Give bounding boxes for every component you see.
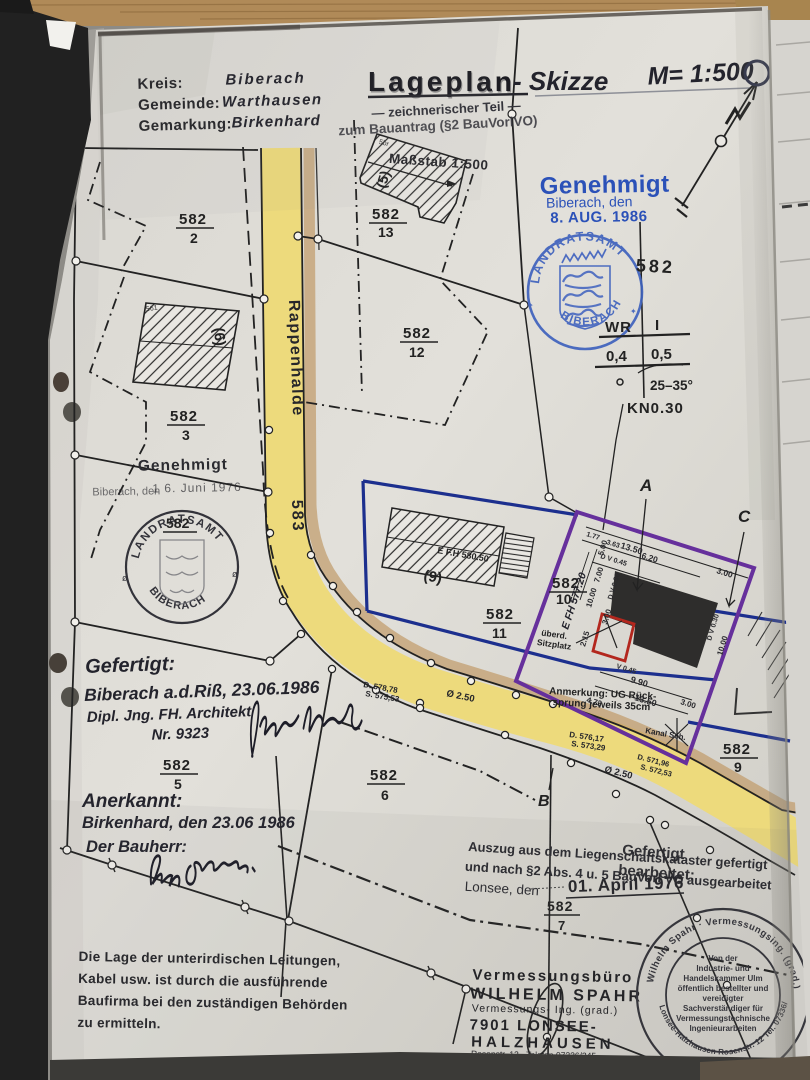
svg-text:582: 582: [486, 606, 514, 623]
svg-text:✦: ✦: [630, 307, 637, 316]
svg-text:582: 582: [163, 757, 191, 774]
svg-text:3: 3: [182, 427, 190, 443]
svg-text:A: A: [639, 476, 652, 495]
svg-text:✦: ✦: [527, 301, 534, 310]
svg-text:B: B: [538, 793, 550, 810]
svg-text:5: 5: [174, 776, 182, 792]
svg-text:Biberach, den: Biberach, den: [92, 485, 160, 498]
svg-text:0,5: 0,5: [651, 346, 672, 363]
svg-text:11: 11: [492, 625, 507, 641]
svg-text:0,4: 0,4: [606, 348, 628, 365]
svg-text:(9): (9): [422, 567, 443, 587]
svg-text:8. AUG. 1986: 8. AUG. 1986: [550, 208, 647, 227]
svg-text:Genehmigt: Genehmigt: [138, 456, 228, 475]
svg-text:13: 13: [378, 224, 394, 240]
svg-text:2: 2: [190, 230, 198, 246]
svg-text:582: 582: [170, 408, 198, 425]
svg-text:Gefertigt:: Gefertigt:: [85, 653, 176, 678]
svg-text:KN0.30: KN0.30: [627, 400, 684, 417]
svg-text:C: C: [738, 507, 751, 526]
svg-text:I: I: [655, 317, 659, 334]
svg-text:(6): (6): [210, 327, 229, 347]
svg-text:12: 12: [409, 344, 425, 360]
svg-text:582: 582: [372, 206, 400, 223]
svg-text:9: 9: [734, 759, 742, 775]
svg-text:WR: WR: [605, 319, 632, 336]
svg-text:1 6. Juni 1976: 1 6. Juni 1976: [152, 480, 242, 496]
svg-text:582: 582: [370, 767, 398, 784]
svg-text:582: 582: [166, 515, 190, 531]
svg-text:583: 583: [288, 500, 306, 533]
svg-text:ø: ø: [232, 569, 238, 579]
svg-text:Nr. 9323: Nr. 9323: [151, 725, 210, 744]
svg-text:582: 582: [635, 255, 675, 277]
svg-text:- Skizze: - Skizze: [513, 66, 608, 96]
svg-text:ø: ø: [122, 573, 128, 583]
svg-text:582: 582: [723, 741, 751, 758]
svg-text:582: 582: [403, 325, 431, 342]
svg-text:6: 6: [381, 787, 389, 803]
svg-text:25–35°: 25–35°: [650, 378, 693, 393]
